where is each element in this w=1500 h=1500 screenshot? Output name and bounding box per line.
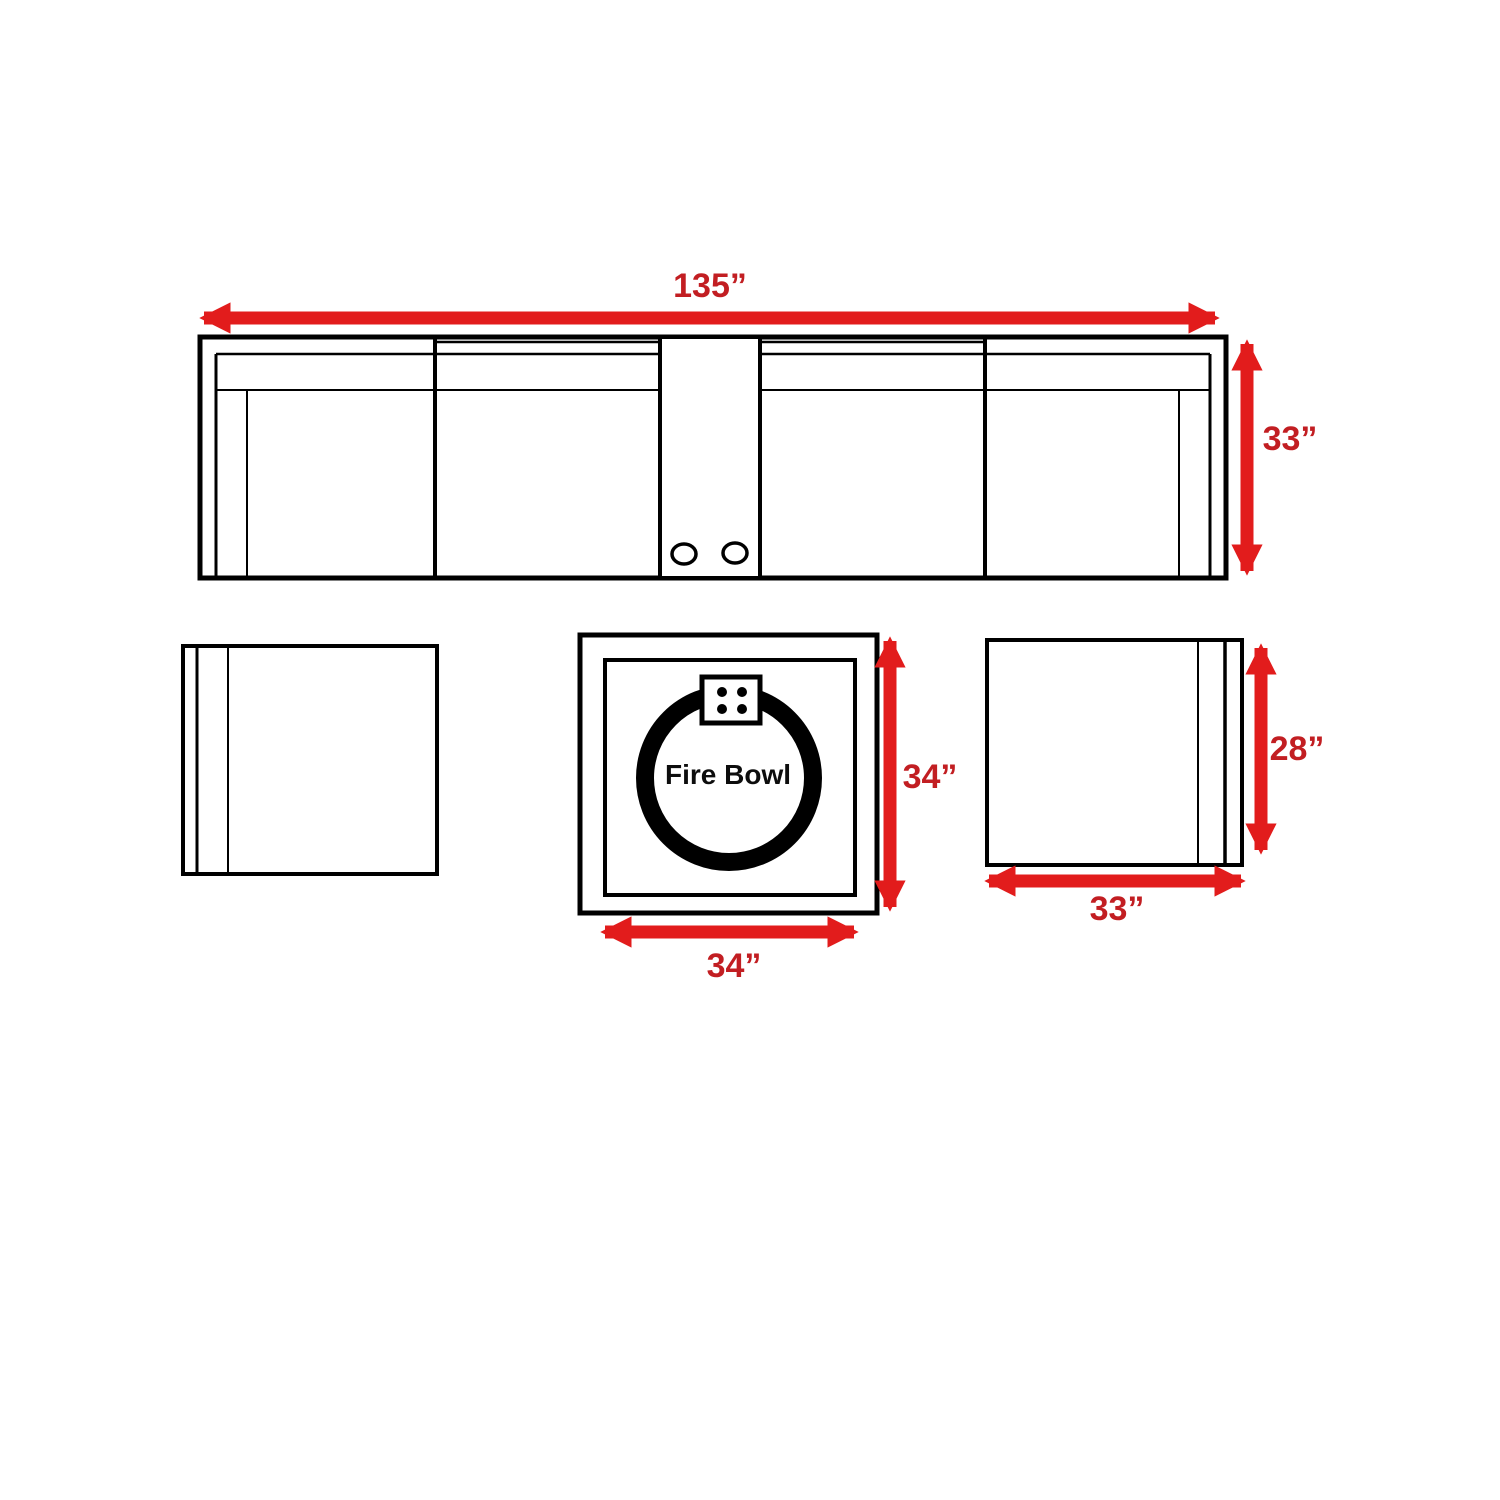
end-table-depth-dimension: 28” (1261, 648, 1324, 850)
fire-table-width-label: 34” (707, 947, 762, 985)
end-table-width-dimension: 33” (989, 881, 1241, 928)
sofa-center-console (660, 337, 760, 578)
sofa-depth-label: 33” (1263, 420, 1318, 458)
furniture-dimension-diagram: 135” 33” Fire Bowl 34” (0, 0, 1500, 1500)
sofa-width-dimension: 135” (204, 267, 1215, 318)
right-end-table-top-view (987, 640, 1242, 865)
sofa-depth-dimension: 33” (1247, 344, 1317, 571)
diagram-canvas: 135” 33” Fire Bowl 34” (0, 0, 1500, 1500)
left-end-table-outline (183, 646, 437, 874)
burner-ignitor-icon (702, 677, 760, 723)
left-end-table-top-view (183, 646, 437, 874)
ignitor-dot (737, 704, 747, 714)
ignitor-dot (717, 704, 727, 714)
right-end-table-outline (987, 640, 1242, 865)
ignitor-dot (737, 687, 747, 697)
sofa-top-view (200, 337, 1226, 578)
fire-table-width-dimension: 34” (605, 932, 854, 985)
end-table-depth-label: 28” (1270, 730, 1325, 768)
ignitor-dot (717, 687, 727, 697)
end-table-width-label: 33” (1090, 890, 1145, 928)
sofa-width-label: 135” (673, 267, 747, 305)
fire-bowl-table-top-view: Fire Bowl (580, 635, 877, 913)
fire-bowl-label: Fire Bowl (665, 759, 791, 790)
fire-table-depth-dimension: 34” (890, 641, 957, 907)
fire-table-depth-label: 34” (903, 758, 958, 796)
